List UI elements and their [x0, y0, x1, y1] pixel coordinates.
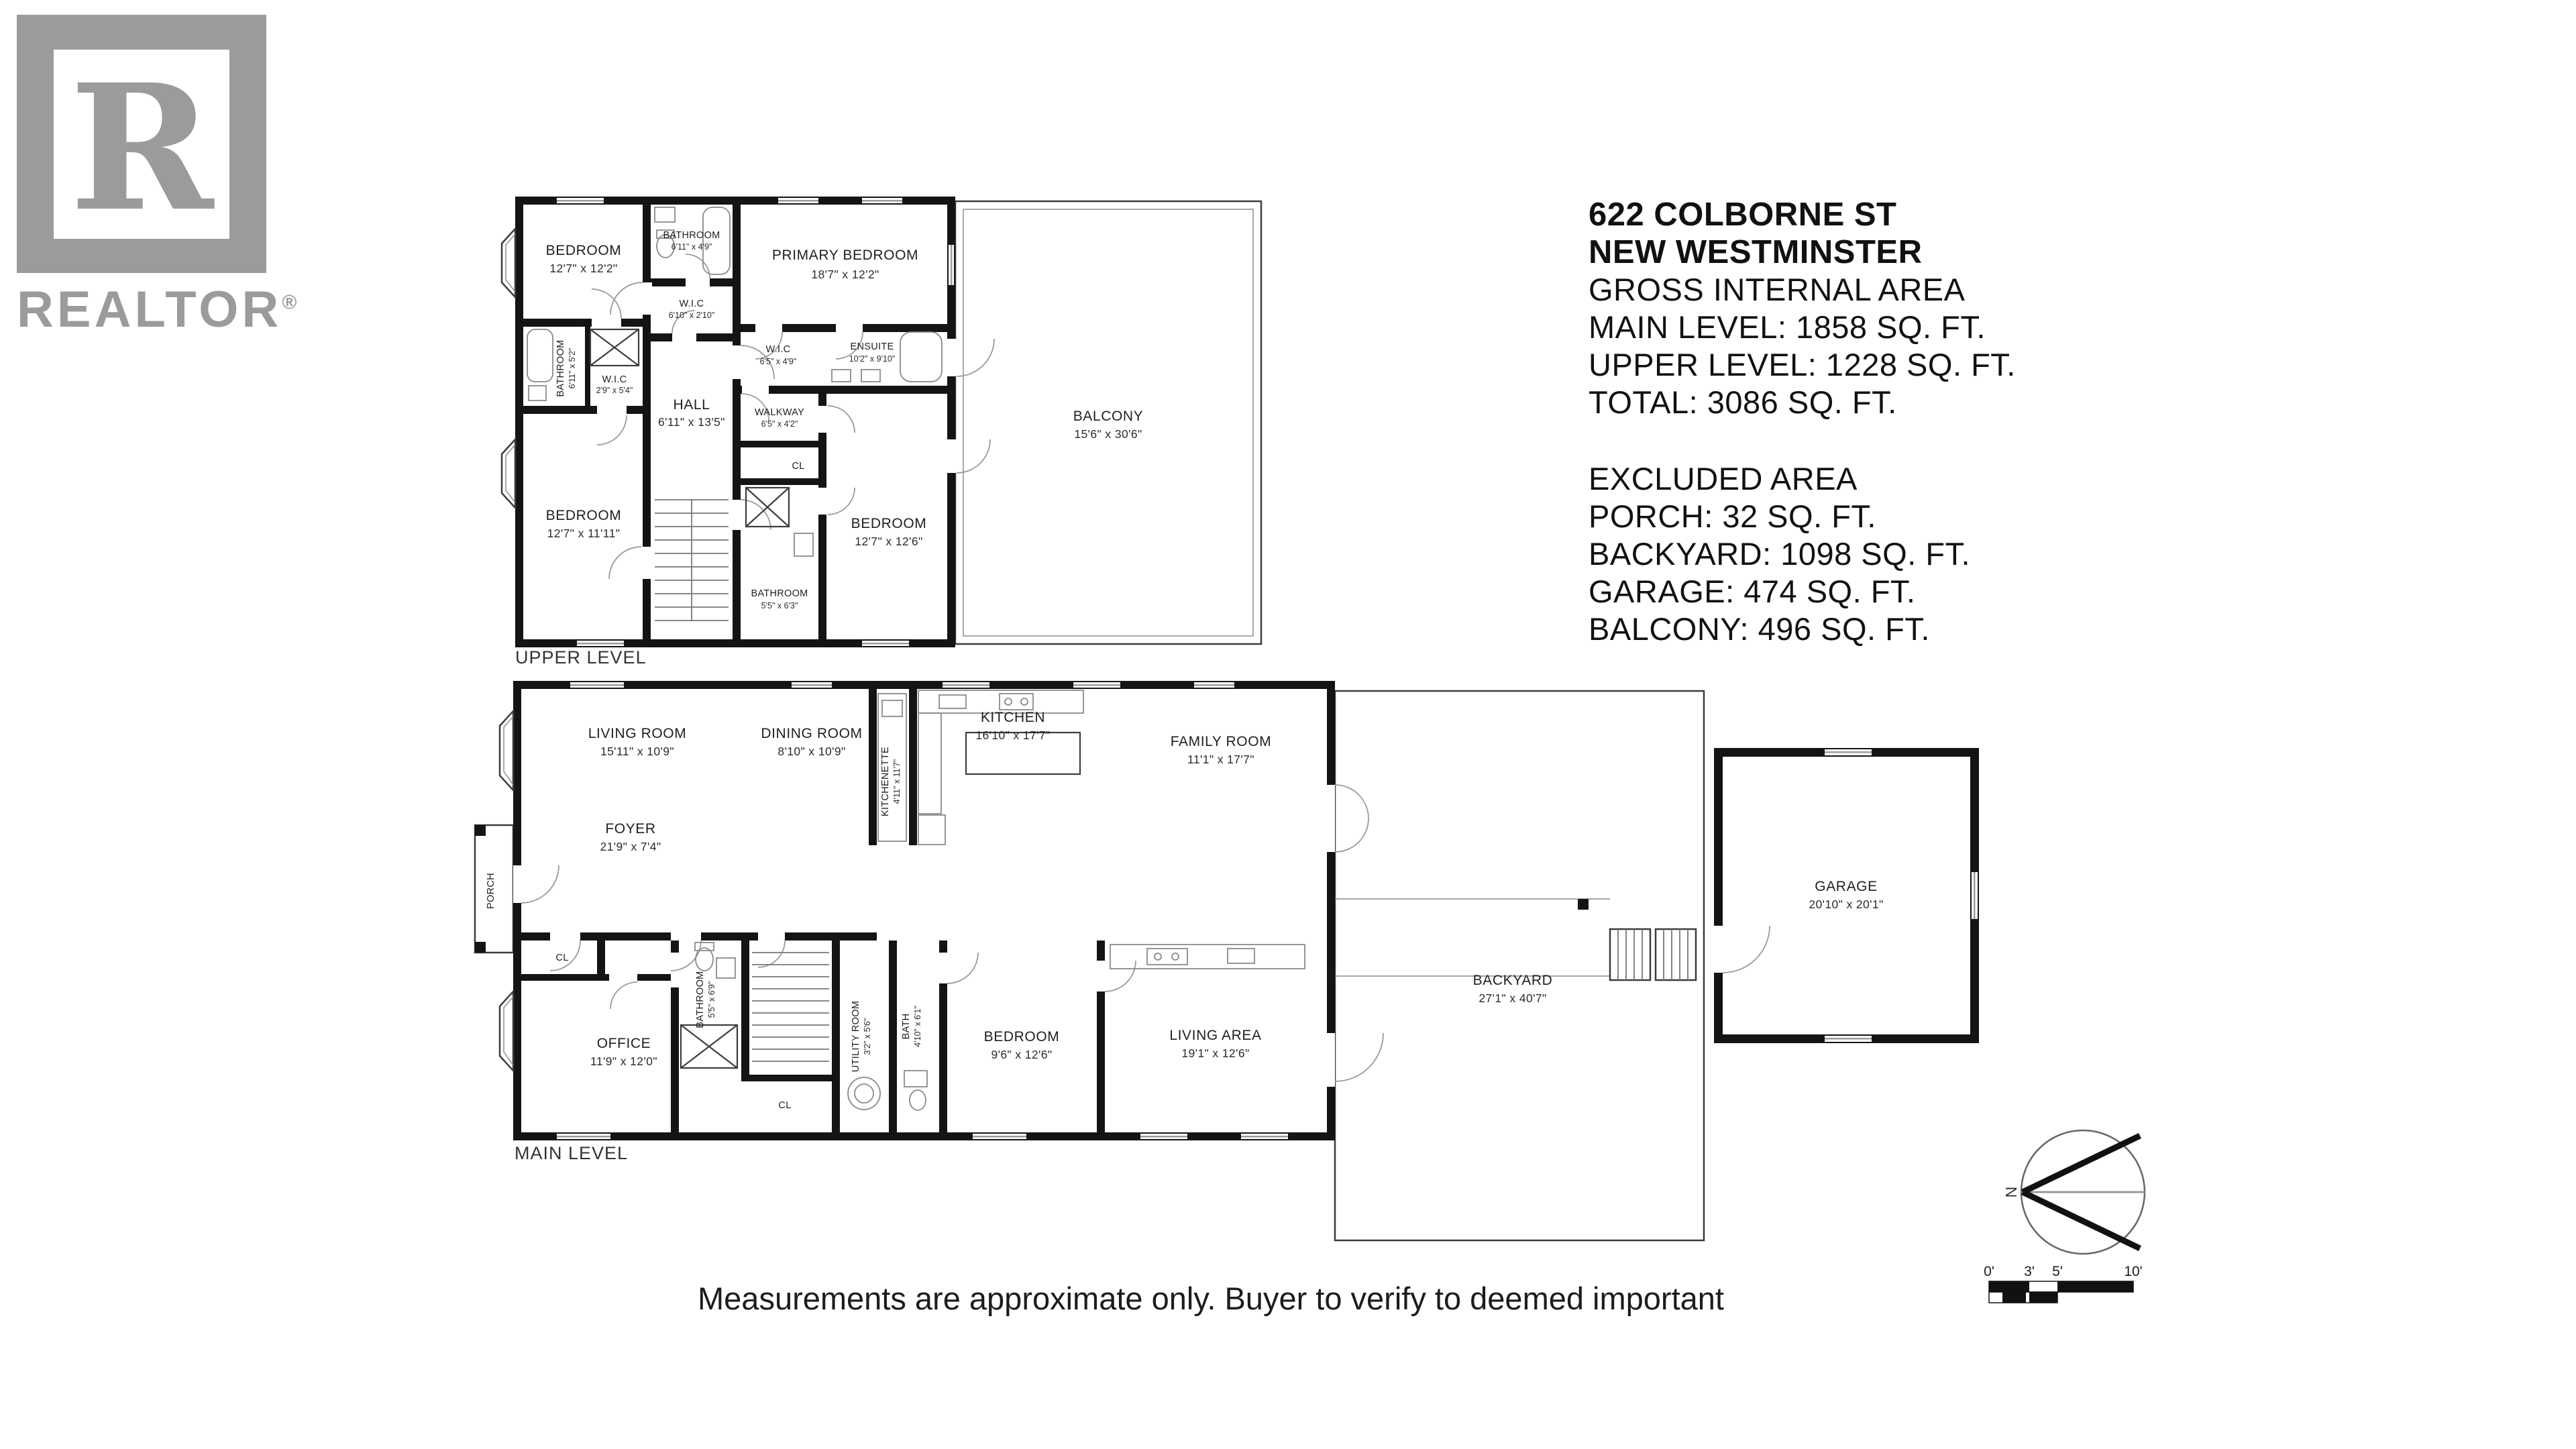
room-dims-utility: 3'2" x 5'6"	[863, 1018, 872, 1055]
realtor-logo-inner: R	[54, 50, 229, 239]
room-dims-primary-bedroom: 18'7" x 12'2"	[811, 268, 879, 281]
room-label-living-room: LIVING ROOM	[588, 726, 687, 741]
room-label-bathroom-left: BATHROOM	[555, 339, 566, 396]
room-dims-living-area: 19'1" x 12'6"	[1181, 1046, 1249, 1060]
room-dims-hall: 6'11" x 13'5"	[658, 415, 725, 429]
room-label-office: OFFICE	[597, 1036, 651, 1051]
main-level-area: MAIN LEVEL: 1858 SQ. FT.	[1589, 309, 2016, 346]
room-dims-kitchen: 16'10" x 17'7"	[975, 729, 1050, 742]
room-label-closet-b: CL	[778, 1100, 791, 1111]
room-dims-family-room: 11'1" x 17'7"	[1187, 753, 1254, 766]
room-label-walkway: WALKWAY	[755, 407, 804, 418]
scale-tick-0: 0'	[1984, 1264, 1994, 1279]
gross-area-title: GROSS INTERNAL AREA	[1589, 271, 2016, 309]
room-label-wic-top: W.I.C	[680, 299, 704, 309]
room-dims-office: 11'9" x 12'0"	[590, 1055, 657, 1068]
room-dims-bath: 4'10" x 6'1"	[913, 1006, 922, 1047]
floor-plan-page: R REALTOR® 622 COLBORNE ST NEW WESTMINST…	[0, 0, 2576, 1449]
room-label-bedroom-tl: BEDROOM	[546, 243, 622, 258]
compass-rose: N	[2006, 1117, 2160, 1271]
room-dims-kitchenette: 4'11" x 11'7"	[892, 759, 902, 804]
room-label-bathroom-top: BATHROOM	[663, 230, 720, 241]
scale-tick-5: 5'	[2052, 1264, 2063, 1279]
bay-window-upper-left	[502, 229, 515, 508]
room-label-bedroom-main: BEDROOM	[984, 1029, 1060, 1044]
room-dims-bathroom-main: 5'5" x 6'9"	[707, 981, 716, 1018]
balcony-area: BALCONY: 496 SQ. FT.	[1589, 610, 2016, 648]
room-label-bedroom-bm: BEDROOM	[851, 516, 927, 531]
room-label-family-room: FAMILY ROOM	[1171, 734, 1272, 749]
room-label-bathroom-br: BATHROOM	[751, 588, 808, 599]
room-dims-wic-top: 6'10" x 2'10"	[669, 311, 715, 320]
room-dims-bedroom-tl: 12'7" x 12'2"	[549, 262, 617, 275]
room-dims-walkway: 6'5" x 4'2"	[761, 419, 798, 429]
main-level-caption: MAIN LEVEL	[515, 1143, 628, 1163]
room-label-closet-a: CL	[555, 953, 568, 963]
room-dims-bedroom-main: 9'6" x 12'6"	[991, 1048, 1052, 1061]
realtor-logo-letter: R	[70, 62, 213, 235]
room-label-backyard: BACKYARD	[1473, 973, 1553, 988]
address-line-2: NEW WESTMINSTER	[1589, 233, 2016, 271]
registered-trademark: ®	[282, 292, 300, 314]
room-label-bathroom-main: BATHROOM	[695, 971, 706, 1028]
porch-area: PORCH: 32 SQ. FT.	[1589, 498, 2016, 535]
room-label-foyer: FOYER	[605, 821, 655, 837]
room-dims-living-room: 15'11" x 10'9"	[600, 745, 674, 758]
room-dims-ensuite: 10'2" x 9'10"	[849, 354, 896, 364]
room-dims-bathroom-top: 6'11" x 4'9"	[672, 242, 712, 252]
room-label-kitchen: KITCHEN	[981, 710, 1045, 725]
backyard-area: BACKYARD: 1098 SQ. FT.	[1589, 535, 2016, 573]
room-label-living-area: LIVING AREA	[1169, 1028, 1261, 1043]
room-dims-backyard: 27'1" x 40'7"	[1479, 991, 1546, 1005]
room-dims-bathroom-br: 5'5" x 6'3"	[761, 601, 798, 610]
room-dims-balcony: 15'6" x 30'6"	[1074, 427, 1142, 441]
main-floor-plan: LIVING ROOM 15'11" x 10'9" DINING ROOM 8…	[470, 671, 2006, 1275]
realtor-logo: R	[17, 15, 266, 273]
scale-tick-10: 10'	[2124, 1264, 2142, 1279]
room-dims-dining-room: 8'10" x 10'9"	[777, 745, 845, 758]
excluded-area-title: EXCLUDED AREA	[1589, 460, 2016, 498]
room-dims-bedroom-bl: 12'7" x 11'11"	[547, 527, 621, 540]
upper-level-area: UPPER LEVEL: 1228 SQ. FT.	[1589, 346, 2016, 384]
room-label-ensuite: ENSUITE	[851, 341, 894, 352]
compass-arrow-lower	[2023, 1192, 2140, 1248]
room-dims-wic-right: 6'5" x 4'9"	[760, 357, 797, 366]
room-dims-foyer: 21'9" x 7'4"	[600, 840, 661, 853]
room-label-wic-mid: W.I.C	[602, 374, 627, 385]
scale-tick-3: 3'	[2024, 1264, 2035, 1279]
room-label-hall: HALL	[674, 397, 710, 413]
room-label-balcony: BALCONY	[1073, 409, 1144, 424]
upper-level-caption: UPPER LEVEL	[515, 647, 647, 667]
room-label-bath: BATH	[901, 1014, 912, 1040]
upper-floor-plan: BEDROOM 12'7" x 12'2" BATHROOM 6'11" x 4…	[496, 184, 1275, 674]
total-area: TOTAL: 3086 SQ. FT.	[1589, 384, 2016, 421]
compass-arrow-upper	[2023, 1136, 2140, 1192]
garage-walls	[1714, 748, 1979, 1043]
room-label-porch: PORCH	[486, 873, 496, 909]
room-dims-bedroom-bm: 12'7" x 12'6"	[855, 535, 922, 548]
room-label-bedroom-bl: BEDROOM	[546, 508, 622, 523]
room-label-dining-room: DINING ROOM	[761, 726, 862, 741]
room-dims-bathroom-left: 6'11" x 5'2"	[568, 348, 577, 389]
north-label: N	[2002, 1187, 2020, 1198]
room-label-wic-right: W.I.C	[766, 344, 791, 355]
room-label-utility: UTILITY ROOM	[851, 1001, 861, 1072]
disclaimer-text: Measurements are approximate only. Buyer…	[698, 1280, 1724, 1317]
room-dims-garage: 20'10" x 20'1"	[1809, 898, 1883, 911]
room-label-kitchenette: KITCHENETTE	[880, 747, 891, 816]
scale-bar: 0' 3' 5' 10'	[1979, 1260, 2153, 1320]
room-dims-wic-mid: 2'9" x 5'4"	[596, 386, 633, 395]
room-label-garage: GARAGE	[1815, 879, 1877, 894]
realtor-wordmark: REALTOR®	[17, 280, 299, 339]
room-label-primary-bedroom: PRIMARY BEDROOM	[772, 248, 918, 263]
garage-area: GARAGE: 474 SQ. FT.	[1589, 573, 2016, 610]
address-line-1: 622 COLBORNE ST	[1589, 196, 2016, 233]
property-info: 622 COLBORNE ST NEW WESTMINSTER GROSS IN…	[1589, 196, 2016, 648]
room-label-closet-upper: CL	[792, 461, 804, 472]
